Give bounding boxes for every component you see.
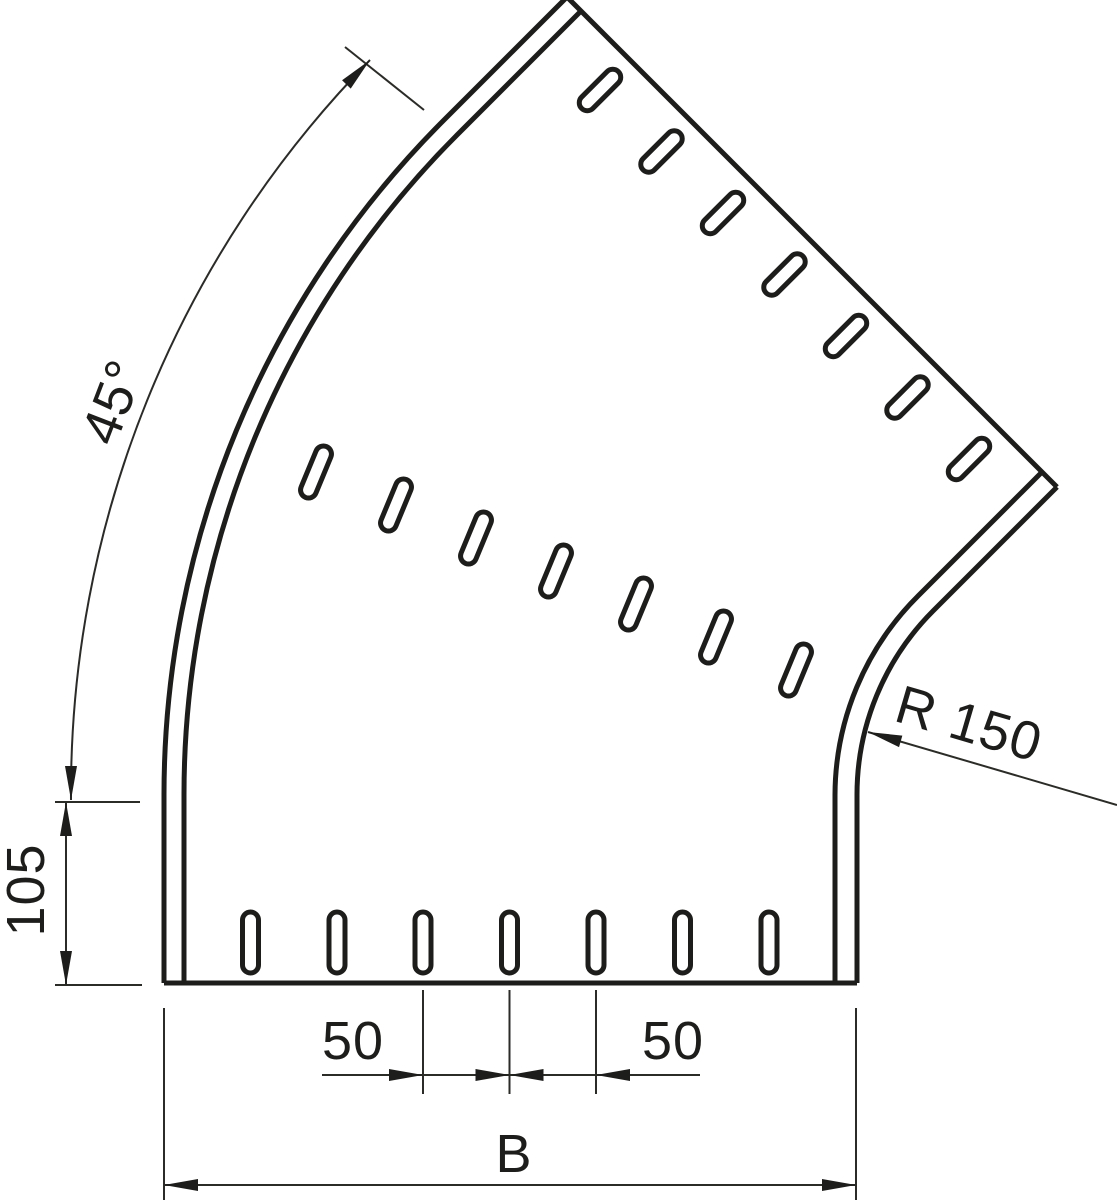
slot <box>415 912 431 973</box>
dimension-slot-pitch: 50 50 <box>322 990 704 1094</box>
end-cut-edge <box>567 0 1057 487</box>
slot <box>760 250 808 298</box>
arrowhead <box>65 766 77 800</box>
slot <box>502 912 518 973</box>
arrowhead <box>476 1069 510 1081</box>
arrowhead <box>60 951 72 985</box>
straight-length-label: 105 <box>0 843 56 936</box>
slot <box>822 312 870 360</box>
pitch-right-label: 50 <box>642 1011 704 1071</box>
drawing-canvas: 45° 105 R 150 50 50 B <box>0 0 1117 1200</box>
arrowhead <box>164 1179 198 1191</box>
slot <box>761 912 777 973</box>
dimension-45-degrees: 45° <box>65 47 424 800</box>
slot <box>378 477 414 534</box>
technical-drawing: 45° 105 R 150 50 50 B <box>0 0 1117 1200</box>
slot <box>329 912 345 973</box>
dimension-105: 105 <box>0 802 142 985</box>
slot <box>945 435 993 483</box>
slot <box>298 444 334 501</box>
radius-label: R 150 <box>889 674 1049 773</box>
bottom-slot-row <box>243 912 778 973</box>
middle-slot-row <box>298 444 814 699</box>
outer-wall-inner-edge <box>184 11 581 983</box>
slot <box>778 642 814 699</box>
arrowhead <box>342 56 374 89</box>
slot <box>243 912 259 973</box>
arrowhead <box>822 1179 856 1191</box>
arrowhead <box>510 1069 544 1081</box>
end-slot-row <box>576 66 993 483</box>
slot <box>675 912 691 973</box>
width-label: B <box>495 1124 532 1184</box>
arrowhead <box>596 1069 630 1081</box>
outer-wall-outer-edge <box>164 0 567 983</box>
slot <box>637 127 685 175</box>
pitch-left-label: 50 <box>322 1011 384 1071</box>
slot <box>618 576 654 633</box>
slot <box>538 543 574 600</box>
slot <box>458 510 494 567</box>
slot <box>588 912 604 973</box>
angle-label: 45° <box>70 352 156 453</box>
arrowhead <box>60 802 72 836</box>
slot <box>699 189 747 237</box>
slot <box>883 373 931 421</box>
slot <box>576 66 624 114</box>
dimension-radius-150: R 150 <box>866 674 1117 805</box>
slot <box>698 609 734 666</box>
tray-outline <box>164 0 1057 983</box>
arrowhead <box>389 1069 423 1081</box>
